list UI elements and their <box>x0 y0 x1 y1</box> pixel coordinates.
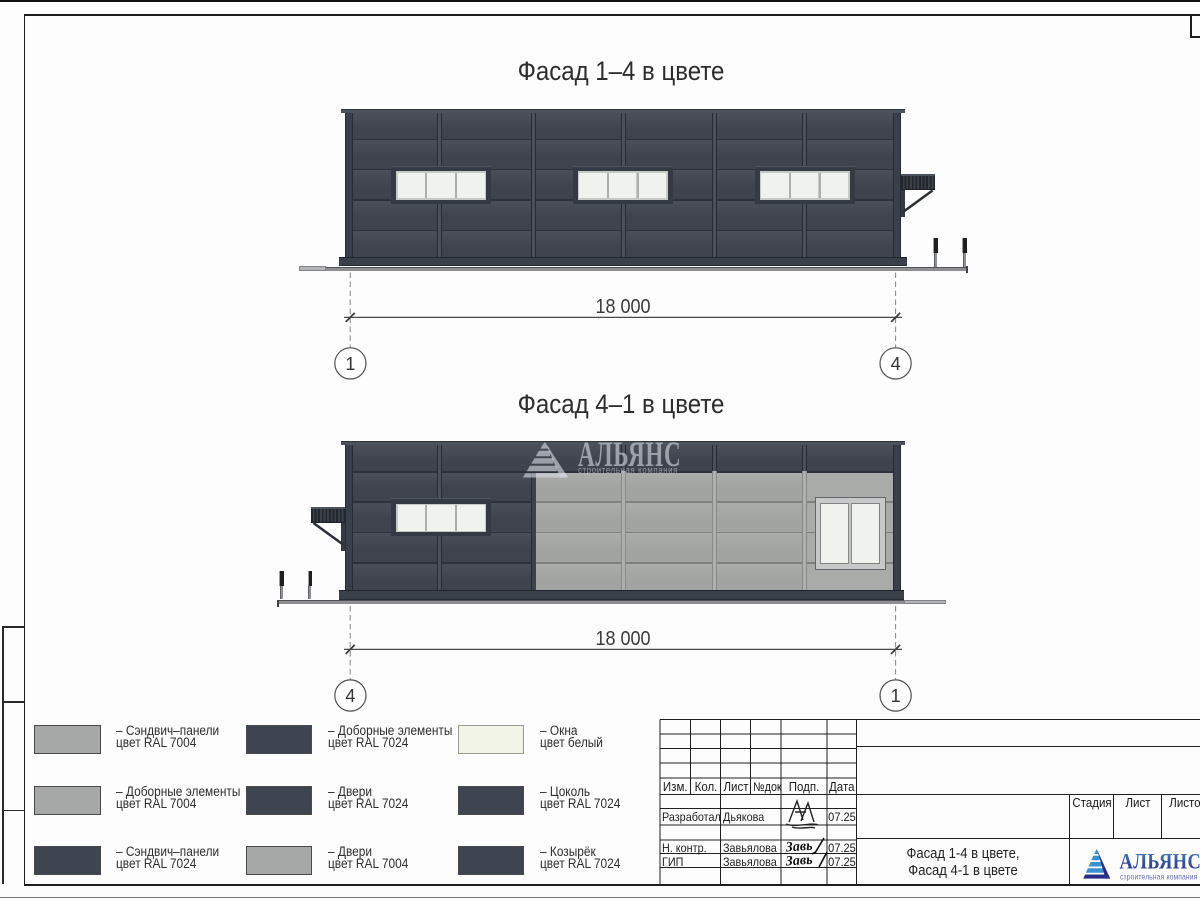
svg-text:4: 4 <box>345 686 355 706</box>
svg-text:АЛЬЯНС: АЛЬЯНС <box>1120 850 1200 874</box>
svg-text:4: 4 <box>891 354 901 374</box>
svg-text:Завь: Завь <box>784 853 813 870</box>
svg-text:1: 1 <box>345 354 355 374</box>
svg-text:1: 1 <box>891 686 901 706</box>
svg-text:строительная компания: строительная компания <box>1120 872 1197 882</box>
